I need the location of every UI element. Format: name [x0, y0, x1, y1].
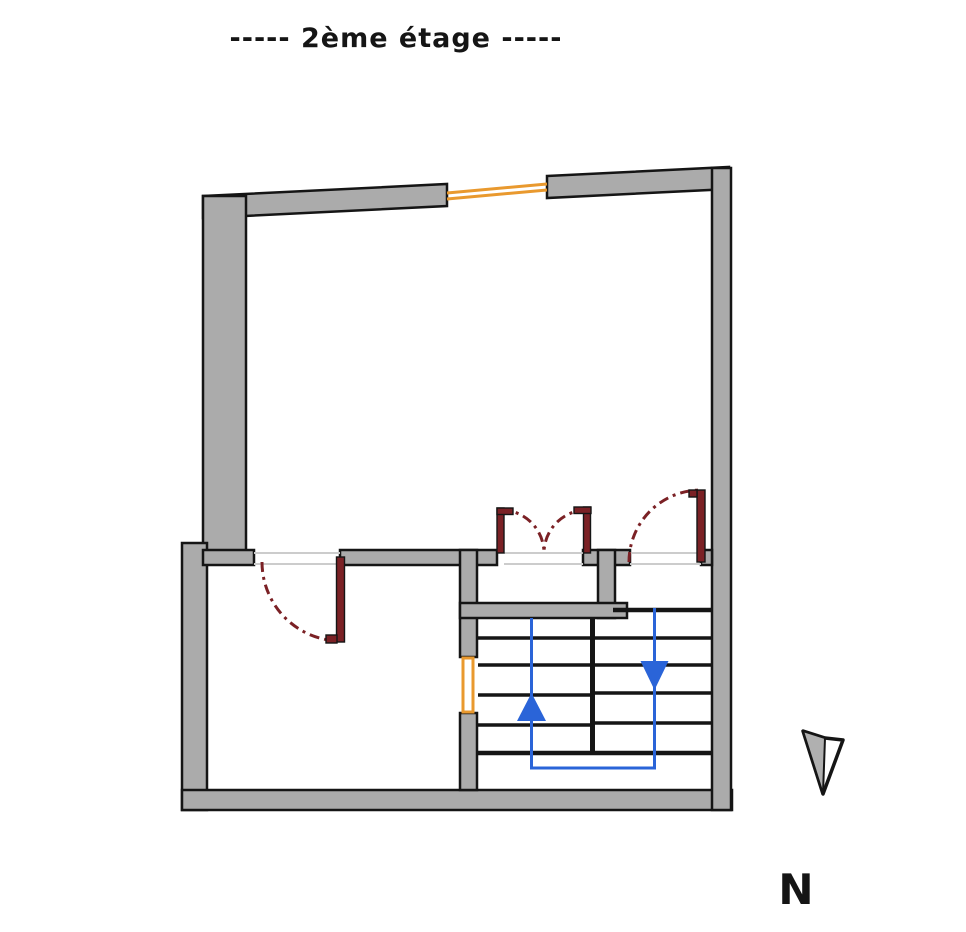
wall-left-lower: [182, 543, 207, 810]
compass: N: [778, 731, 843, 914]
exterior-walls: [182, 167, 732, 810]
floor-title: ----- 2ème étage -----: [230, 23, 563, 54]
door-leaf-foot: [497, 508, 513, 515]
door-room: [262, 557, 345, 643]
wall-corridor-left: [203, 550, 254, 565]
wall-stair-left-lower: [460, 713, 477, 790]
staircase: [478, 610, 711, 753]
window-stair: [463, 658, 473, 712]
door-swing-arc: [544, 510, 587, 553]
north-label: N: [778, 865, 813, 914]
door-leaf: [337, 557, 345, 642]
doors: [262, 490, 705, 643]
north-arrow-shaded-half: [803, 731, 825, 794]
wall-right: [712, 168, 731, 810]
door-double-left: [497, 508, 544, 553]
door-leaf-foot: [689, 490, 697, 497]
door-double-right: [544, 507, 591, 553]
arrow-down-icon: [641, 661, 669, 690]
door-swing-arc: [501, 510, 544, 553]
window-top: [447, 184, 547, 199]
door-swing-arc: [262, 562, 341, 641]
door-leaf-foot: [574, 507, 591, 514]
door-landing: [629, 490, 705, 562]
wall-top-right: [547, 167, 729, 198]
door-swing-arc: [629, 490, 701, 562]
wall-left-upper: [203, 196, 246, 553]
door-leaf-foot: [326, 635, 337, 643]
wall-bottom: [182, 790, 732, 810]
arrow-up-icon: [517, 693, 546, 721]
wall-closet-bottom: [460, 603, 627, 618]
door-leaf: [697, 490, 705, 562]
floor-plan-canvas: ----- 2ème étage -----: [0, 0, 966, 932]
